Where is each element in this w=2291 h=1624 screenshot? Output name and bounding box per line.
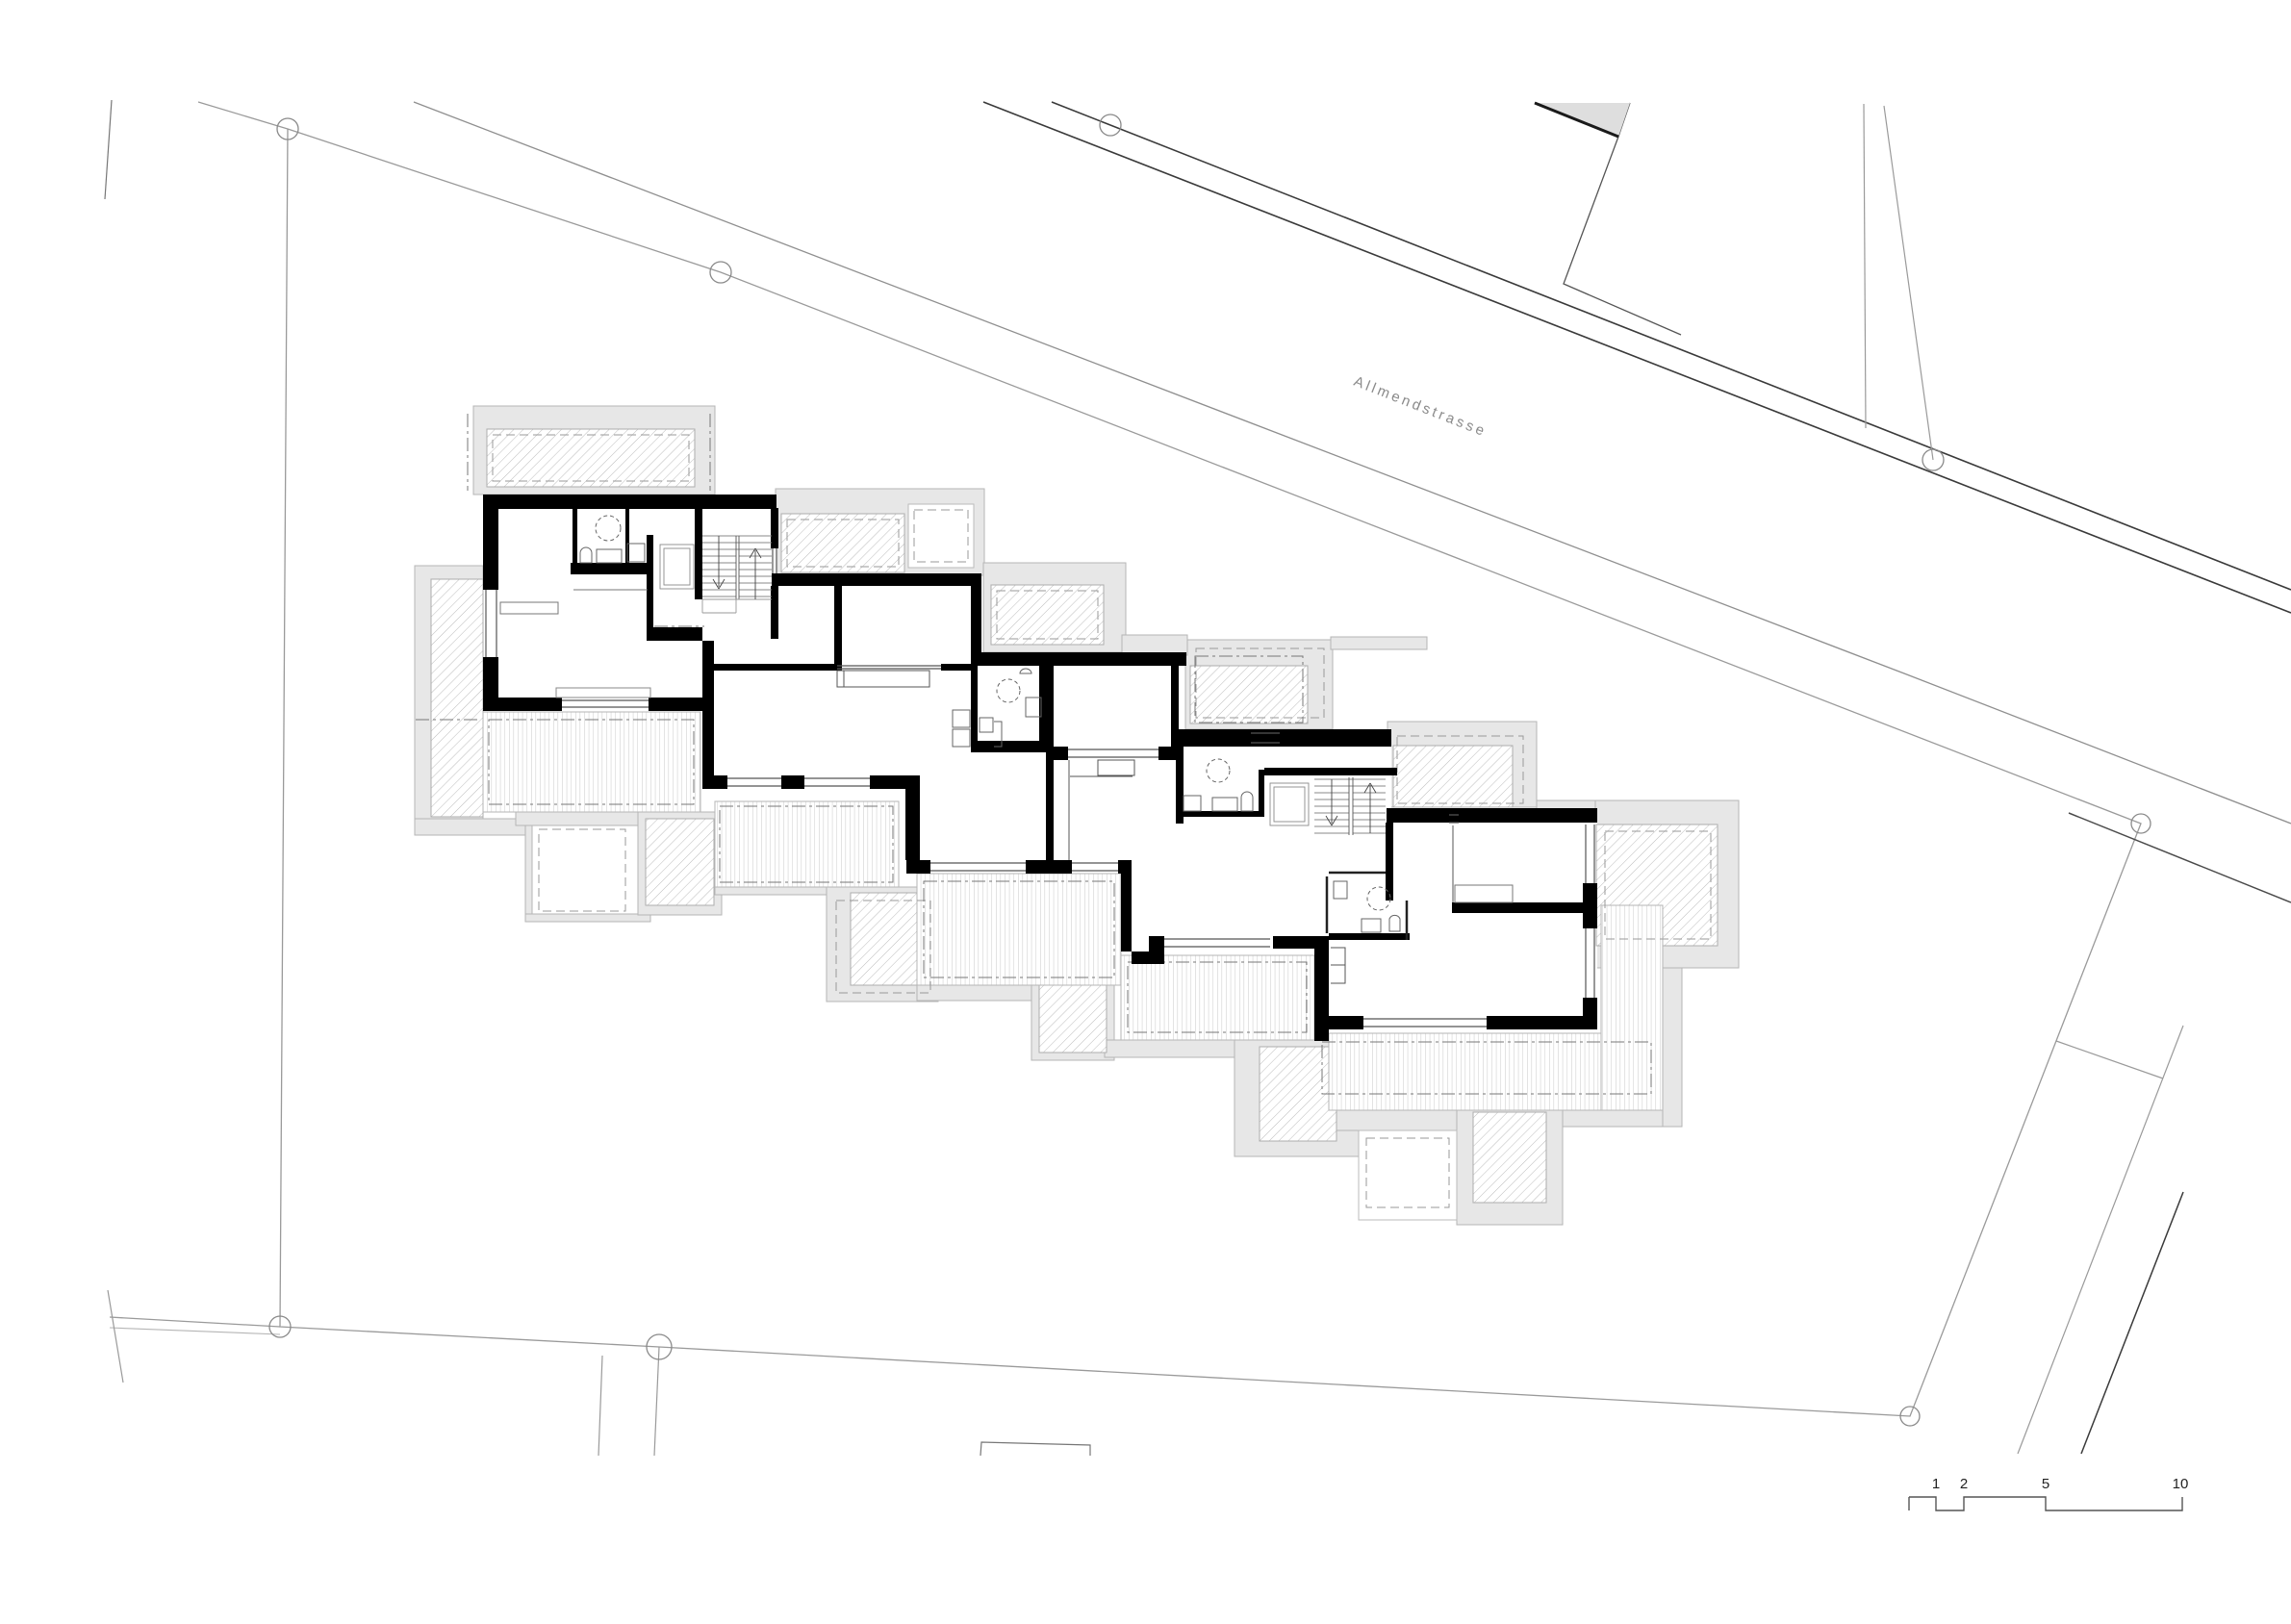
svg-text:1: 1 [1932,1476,1940,1492]
svg-text:5: 5 [2042,1476,2049,1492]
svg-text:10: 10 [2173,1476,2189,1492]
svg-text:2: 2 [1960,1476,1968,1492]
